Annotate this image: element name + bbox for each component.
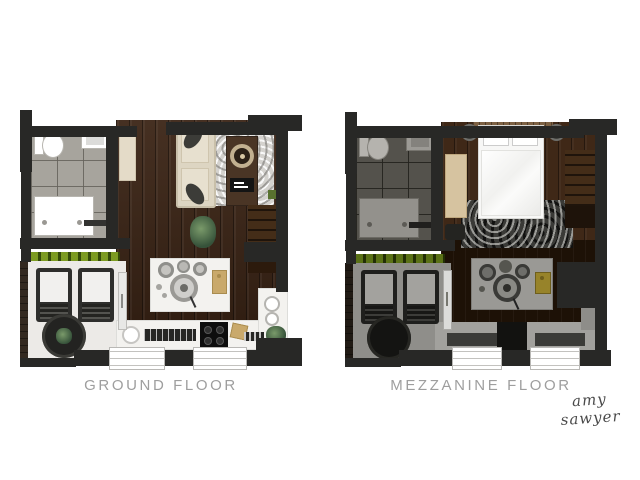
chair-cushion xyxy=(40,272,68,302)
chair-base xyxy=(82,304,110,319)
walkway-center-post xyxy=(497,322,527,350)
wall-bathroom-right xyxy=(106,126,118,240)
small-bowl-below xyxy=(479,286,485,292)
small-bowl xyxy=(156,284,162,290)
burner xyxy=(216,326,224,334)
balcony-chair xyxy=(78,268,114,322)
island-stool-below xyxy=(479,264,496,281)
door-handle xyxy=(121,294,123,308)
walkway-panel xyxy=(447,333,497,346)
stove xyxy=(200,322,228,348)
small-bowl xyxy=(162,293,167,298)
balcony-hedge-shaded xyxy=(353,254,445,263)
board-hole xyxy=(217,274,221,278)
mezzanine-walkway xyxy=(435,322,605,350)
wall-bathroom-right xyxy=(431,128,443,242)
sliding-door xyxy=(118,272,127,330)
ground-floor-plan xyxy=(20,110,302,370)
kitchen-island xyxy=(150,258,230,312)
mezzanine-floor-plan xyxy=(345,112,617,370)
record-line xyxy=(234,182,244,184)
toilet-tank xyxy=(35,136,43,154)
record-player xyxy=(230,178,254,192)
table-plant xyxy=(56,328,72,344)
wall-bathroom-bottom xyxy=(345,240,455,251)
shower-drain xyxy=(77,220,82,225)
sink-drainer xyxy=(144,329,196,341)
sofa xyxy=(176,124,216,208)
stairs xyxy=(565,150,595,206)
shower-tray xyxy=(35,197,93,235)
wall-stair-block xyxy=(244,242,288,262)
island-stool xyxy=(158,262,174,278)
wall-right xyxy=(276,124,288,292)
wall-corner-bottom-right xyxy=(256,338,302,366)
wall-corner-block xyxy=(557,262,597,308)
cutting-board-below xyxy=(535,272,551,294)
door-handle xyxy=(446,292,448,306)
wall-top xyxy=(354,126,584,138)
kitchen-sink xyxy=(124,328,138,342)
balcony-hedge xyxy=(28,252,120,261)
chair-cushion xyxy=(407,274,435,304)
floor-plant xyxy=(190,216,216,248)
speaker-dot xyxy=(240,154,245,159)
island-stool-below xyxy=(515,264,530,279)
shower-drain xyxy=(42,220,47,225)
speaker xyxy=(230,144,254,168)
island-basin xyxy=(170,274,198,302)
island-basin-drain xyxy=(180,284,188,292)
wall-right xyxy=(595,126,607,354)
window xyxy=(531,348,579,369)
shower-drain xyxy=(402,222,407,227)
wall-balcony-bottom xyxy=(20,358,76,367)
sliding-door xyxy=(443,270,452,330)
media-console xyxy=(226,136,258,206)
chair-base xyxy=(407,306,435,321)
island-stool xyxy=(193,262,207,276)
tall-cabinet xyxy=(119,133,136,181)
toilet-tank-shaded xyxy=(360,138,368,156)
plate xyxy=(267,314,277,324)
window xyxy=(110,348,164,369)
duvet xyxy=(481,150,541,216)
shower-drain xyxy=(367,222,372,227)
stairs-lower-landing xyxy=(565,206,595,228)
kitchen-island-below xyxy=(471,258,553,310)
ground-floor-label: GROUND FLOOR xyxy=(20,377,302,394)
toilet-shaded xyxy=(368,136,388,159)
wall-top-cap xyxy=(569,119,617,135)
bench xyxy=(445,154,467,218)
burner xyxy=(204,326,212,334)
walkway-panel xyxy=(535,333,585,346)
balcony-chair-shaded xyxy=(403,270,439,324)
plate xyxy=(266,298,278,310)
island-stool-below xyxy=(499,260,512,273)
board-hole xyxy=(540,276,544,280)
island-basin-below xyxy=(493,274,521,302)
window xyxy=(453,348,501,369)
bedroom-stool xyxy=(445,224,465,240)
record-line xyxy=(234,186,248,188)
designer-signature: amy sawyer xyxy=(539,388,640,431)
burner xyxy=(216,337,224,345)
wall-bottom xyxy=(399,350,611,366)
wall-top-left xyxy=(29,126,137,137)
window xyxy=(194,348,246,369)
wall-balcony-bottom xyxy=(345,358,401,367)
floor-plan-sheet: GROUND FLOOR MEZZANINE FLOOR amy sawyer xyxy=(0,0,640,480)
burner xyxy=(204,337,212,345)
wall-top-cap xyxy=(248,115,302,131)
wall-bathroom-bottom xyxy=(20,238,130,249)
faucet-below xyxy=(513,298,520,310)
chair-cushion xyxy=(82,272,110,302)
island-stool xyxy=(177,260,190,273)
shower-tray-shaded xyxy=(360,199,418,237)
toilet xyxy=(43,134,63,157)
bed xyxy=(479,126,543,218)
island-basin-drain xyxy=(503,284,511,292)
chair-cushion xyxy=(365,274,393,304)
island-cutting-board xyxy=(212,270,227,294)
